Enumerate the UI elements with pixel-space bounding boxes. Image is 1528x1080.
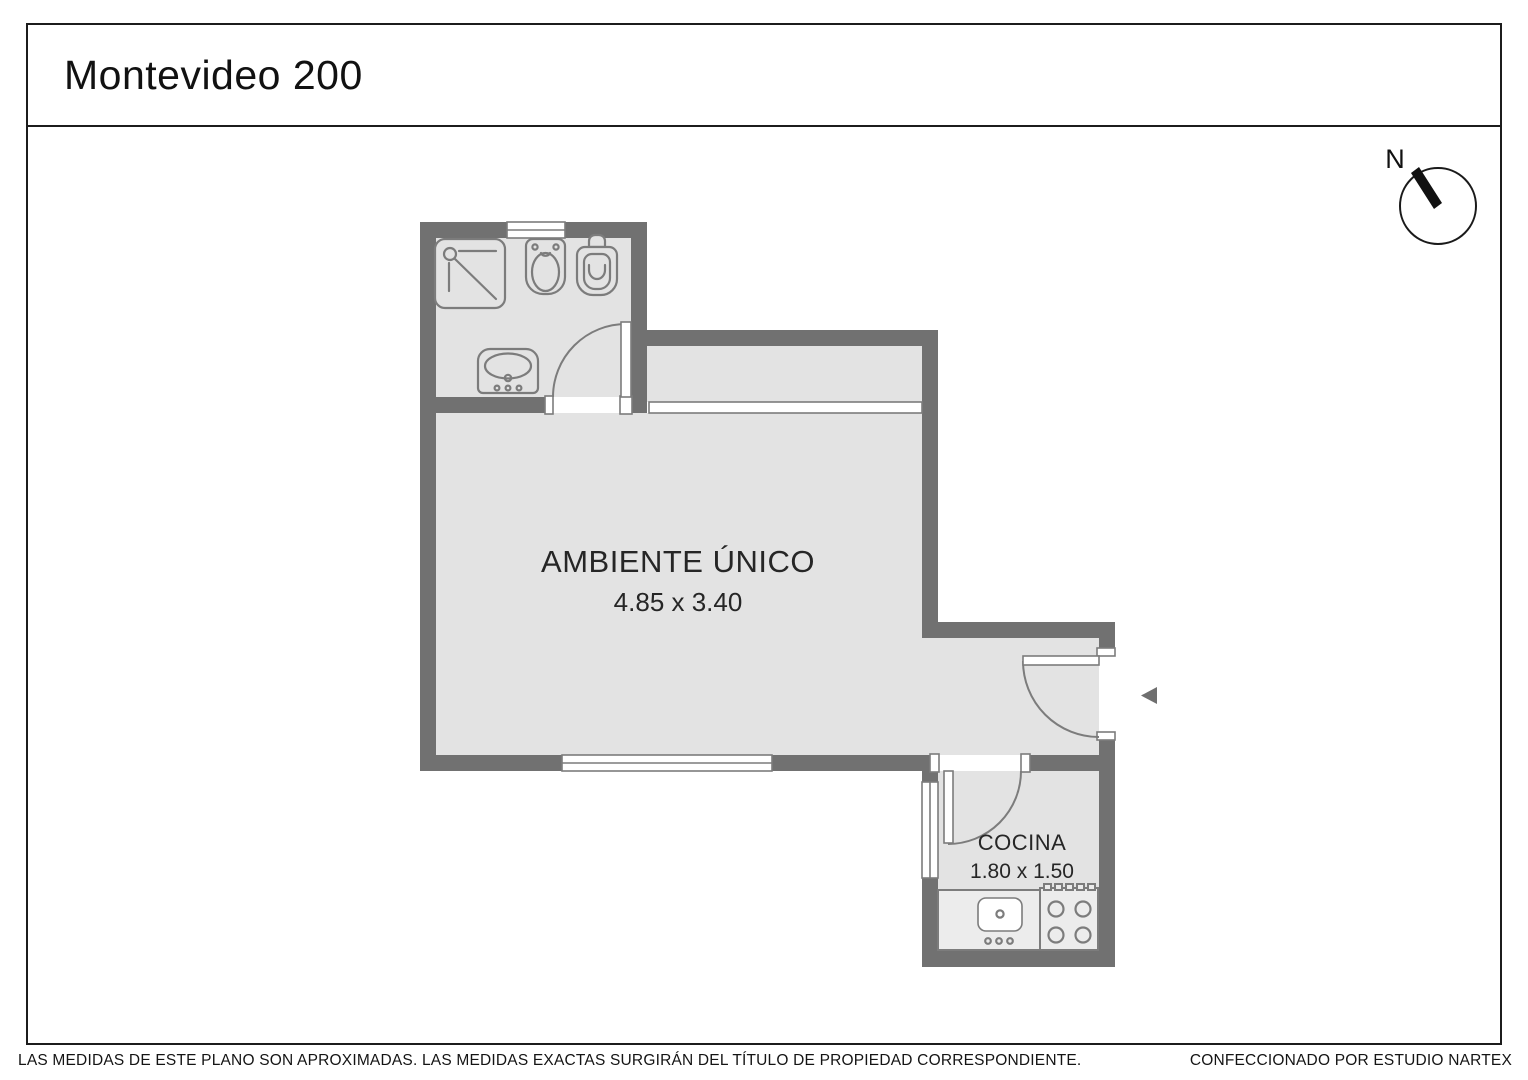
footer-disclaimer: LAS MEDIDAS DE ESTE PLANO SON APROXIMADA… bbox=[18, 1052, 1081, 1070]
closet-strip-floor bbox=[647, 346, 922, 402]
main-room-label: AMBIENTE ÚNICO 4.85 x 3.40 bbox=[518, 544, 838, 618]
kitchen-label: COCINA 1.80 x 1.50 bbox=[938, 830, 1106, 884]
compass-icon bbox=[1385, 145, 1505, 265]
main-room-window-icon bbox=[562, 755, 772, 771]
shower-icon bbox=[435, 239, 505, 308]
footer-credit: CONFECCIONADO POR ESTUDIO NARTEX bbox=[1100, 1052, 1512, 1070]
kitchen-sink-icon bbox=[938, 890, 1040, 950]
closet-sliding-front-icon bbox=[649, 402, 922, 413]
page-title: Montevideo 200 bbox=[64, 52, 363, 99]
bathroom-window-icon bbox=[507, 222, 565, 238]
bidet-icon bbox=[526, 239, 565, 294]
main-room-dimensions: 4.85 x 3.40 bbox=[518, 587, 838, 618]
stove-icon bbox=[1040, 884, 1098, 950]
entrance-arrow-icon bbox=[1141, 687, 1157, 704]
title-separator-line bbox=[26, 125, 1502, 127]
bathroom-sink-icon bbox=[478, 349, 538, 393]
kitchen-fixtures bbox=[938, 884, 1098, 950]
floor-plan-page: Montevideo 200 N bbox=[0, 0, 1528, 1080]
kitchen-dimensions: 1.80 x 1.50 bbox=[938, 860, 1106, 884]
kitchen-window-icon bbox=[922, 782, 938, 878]
main-room-name: AMBIENTE ÚNICO bbox=[518, 544, 838, 580]
kitchen-name: COCINA bbox=[938, 830, 1106, 856]
